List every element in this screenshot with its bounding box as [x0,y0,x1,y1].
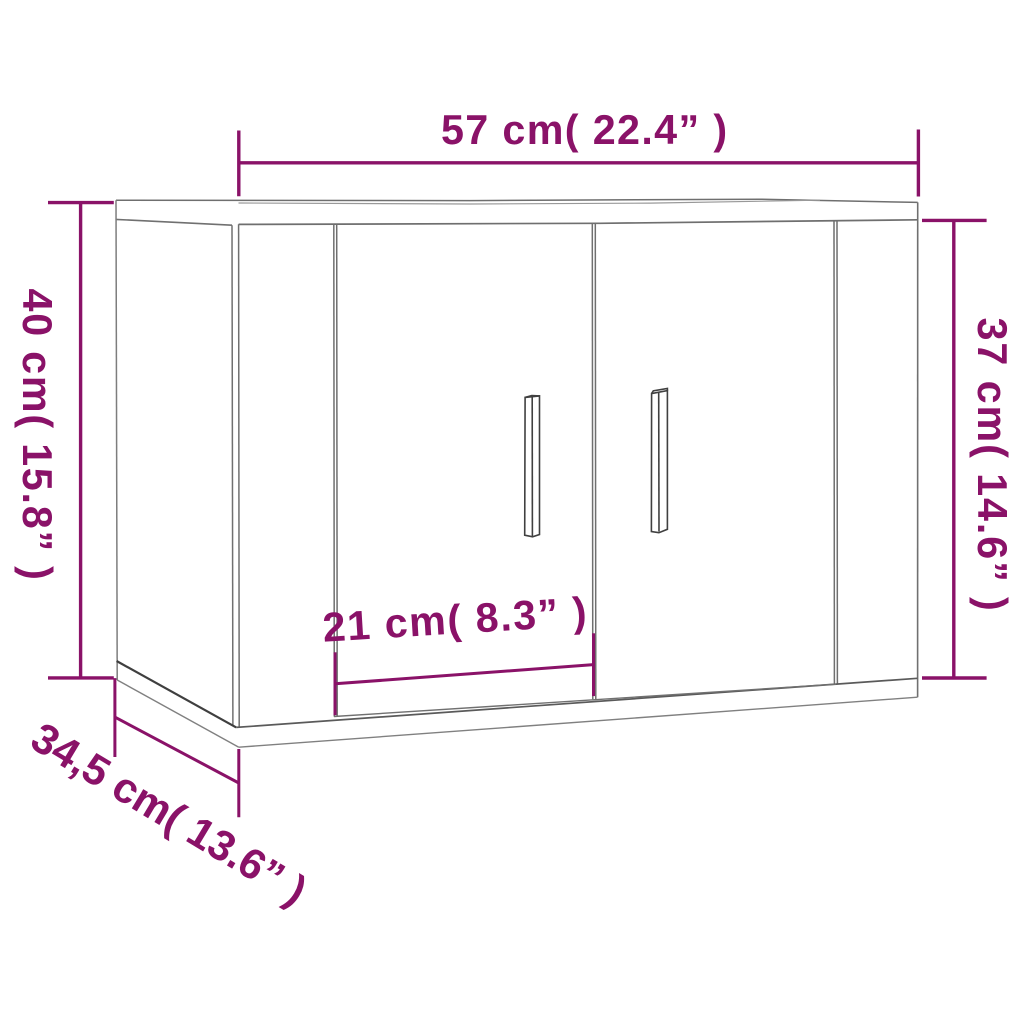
svg-text:40 cm( 15.8” ): 40 cm( 15.8” ) [14,289,60,582]
svg-text:57 cm( 22.4” ): 57 cm( 22.4” ) [441,107,728,153]
svg-text:37 cm( 14.6” ): 37 cm( 14.6” ) [969,318,1015,613]
